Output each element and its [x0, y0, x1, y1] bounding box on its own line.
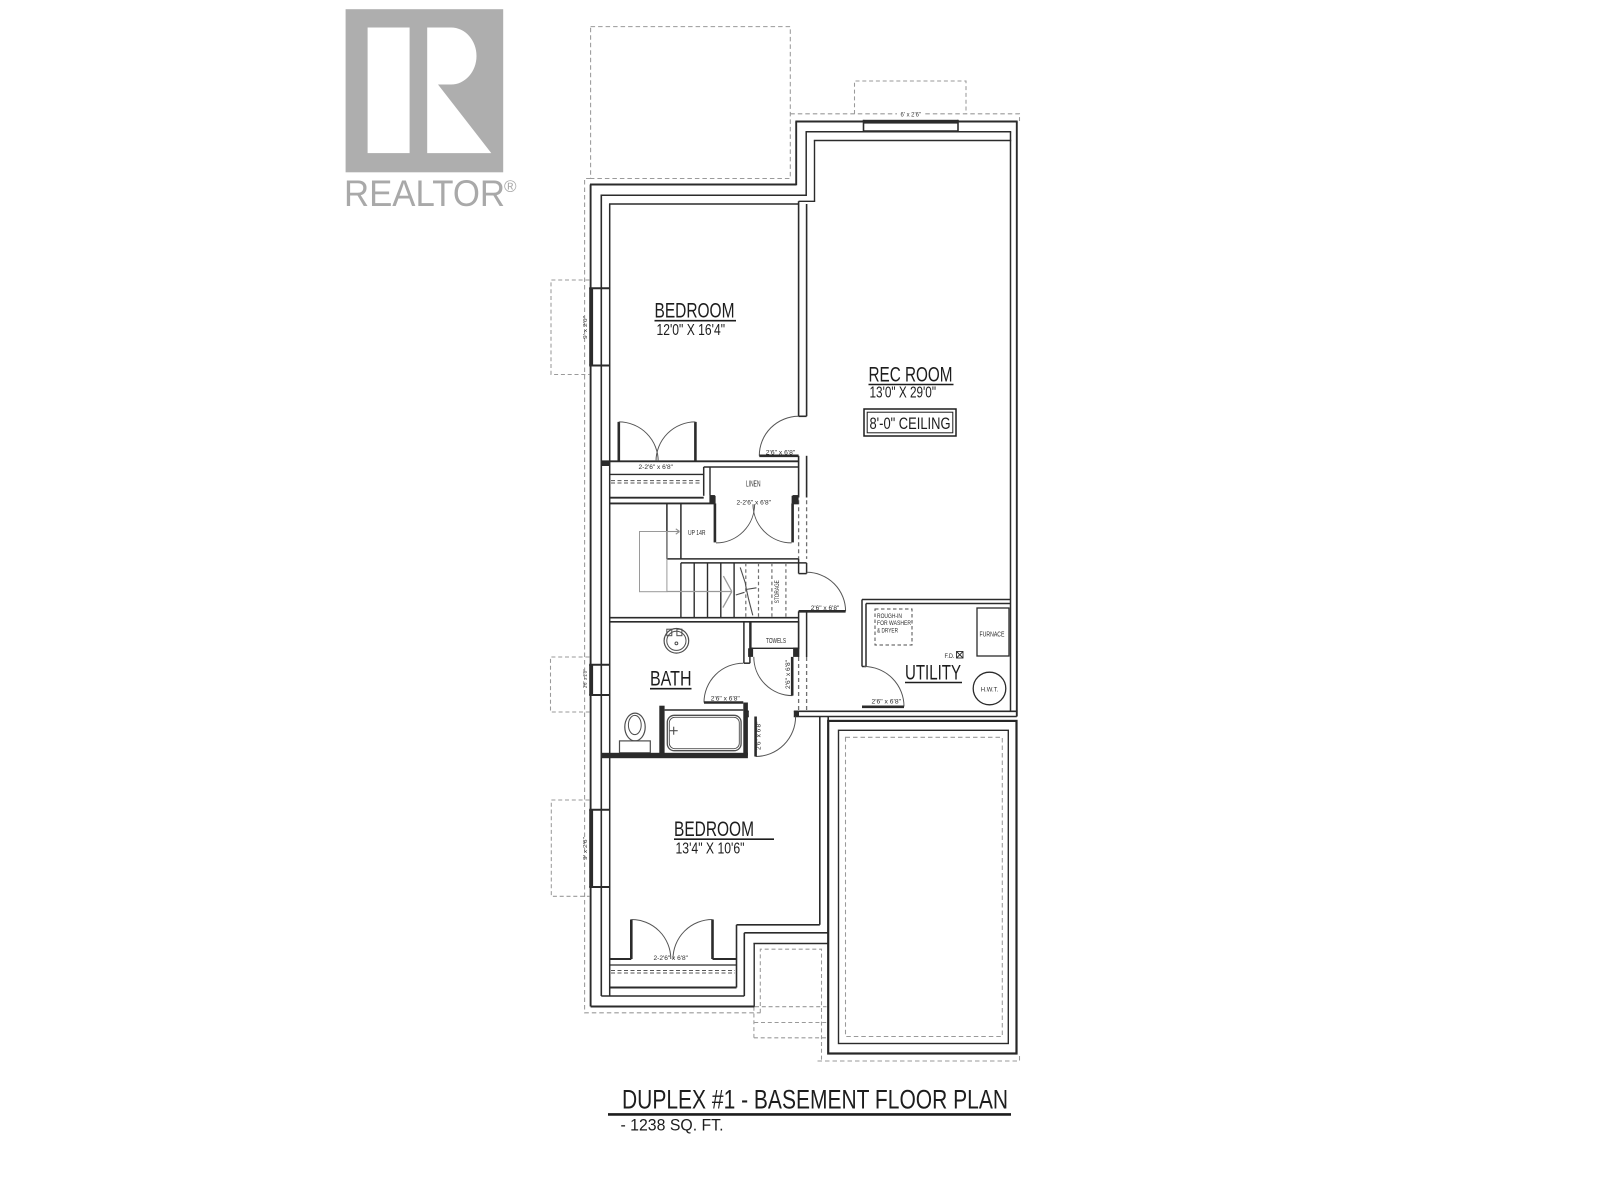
svg-text:2'6" x 6'8": 2'6" x 6'8" [756, 722, 763, 751]
svg-text:FURNACE: FURNACE [980, 630, 1005, 639]
svg-text:2'6" x 6'8": 2'6" x 6'8" [872, 699, 902, 706]
svg-text:2-2'6" x 6'8": 2-2'6" x 6'8" [654, 955, 689, 962]
svg-text:13'4" X 10'6": 13'4" X 10'6" [676, 841, 745, 858]
svg-text:2'6" x 6'8": 2'6" x 6'8" [766, 450, 796, 457]
svg-text:BATH: BATH [650, 667, 692, 691]
svg-text:DUPLEX #1 - BASEMENT FLOOR PLA: DUPLEX #1 - BASEMENT FLOOR PLAN [622, 1085, 1008, 1115]
svg-text:REALTOR: REALTOR [344, 173, 505, 214]
svg-text:H.W.T.: H.W.T. [981, 686, 999, 693]
svg-text:ROUGH-IN: ROUGH-IN [877, 613, 902, 620]
svg-text:13'0" X 29'0": 13'0" X 29'0" [870, 385, 937, 402]
svg-text:TOWELS: TOWELS [766, 638, 786, 645]
svg-text:8'-0" CEILING: 8'-0" CEILING [870, 414, 951, 433]
svg-text:9' x 2'6": 9' x 2'6" [583, 316, 589, 339]
svg-text:UP 14R: UP 14R [688, 530, 706, 537]
svg-text:- 1238 SQ. FT.: - 1238 SQ. FT. [621, 1116, 724, 1135]
svg-text:FOR WASHER: FOR WASHER [877, 620, 911, 627]
svg-text:REC ROOM: REC ROOM [869, 362, 953, 386]
svg-text:BEDROOM: BEDROOM [674, 817, 754, 841]
svg-text:STORAGE: STORAGE [774, 580, 781, 603]
svg-text:2-2'6" x 6'8": 2-2'6" x 6'8" [737, 500, 772, 507]
svg-text:LINEN: LINEN [746, 479, 761, 488]
svg-text:BEDROOM: BEDROOM [655, 299, 735, 323]
svg-text:UTILITY: UTILITY [905, 661, 961, 685]
svg-text:& DRYER: & DRYER [877, 627, 898, 634]
svg-text:12'0" X 16'4": 12'0" X 16'4" [657, 322, 726, 339]
svg-text:2'6" x 6'8": 2'6" x 6'8" [785, 660, 792, 689]
svg-text:2'6" x 6'8": 2'6" x 6'8" [811, 605, 840, 612]
svg-text:2'6" x 6'8": 2'6" x 6'8" [711, 696, 741, 703]
svg-text:6' x 2'6": 6' x 2'6" [901, 112, 922, 119]
svg-text:9' x 2'6": 9' x 2'6" [583, 837, 589, 860]
svg-text:®: ® [504, 177, 517, 196]
svg-text:2'6" x 2'6": 2'6" x 2'6" [583, 670, 589, 689]
svg-text:F.D.: F.D. [945, 654, 955, 660]
svg-text:2-2'6" x 6'8": 2-2'6" x 6'8" [639, 464, 674, 471]
